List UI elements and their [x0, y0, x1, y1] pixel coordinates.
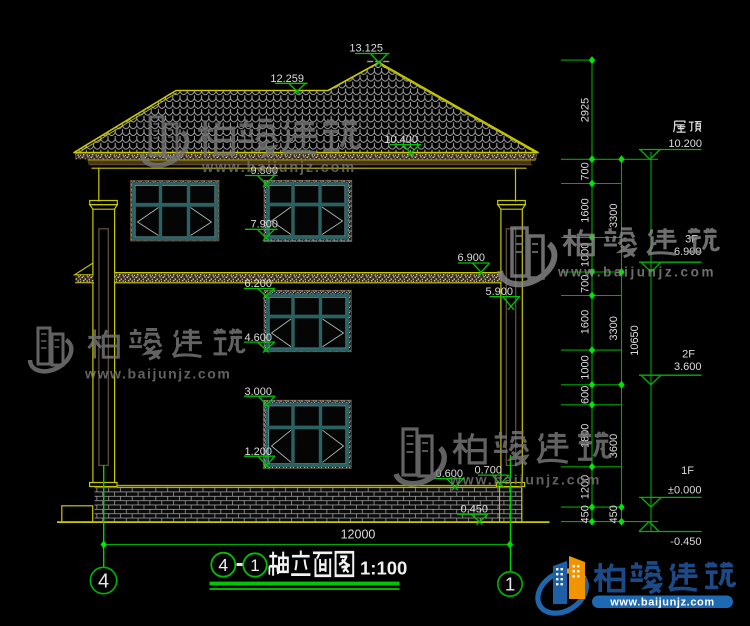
- svg-text:-0.450: -0.450: [670, 536, 701, 548]
- svg-text:600: 600: [580, 386, 592, 404]
- svg-text:3.600: 3.600: [674, 361, 702, 373]
- svg-text:1: 1: [505, 574, 515, 595]
- svg-text:3300: 3300: [608, 203, 620, 227]
- svg-text:www.baijunjz.com: www.baijunjz.com: [449, 472, 601, 488]
- svg-text:4: 4: [218, 555, 228, 575]
- svg-text:1F: 1F: [681, 465, 694, 477]
- svg-text:1:100: 1:100: [360, 558, 407, 579]
- svg-text:700: 700: [580, 162, 592, 180]
- svg-text:1600: 1600: [580, 310, 592, 334]
- svg-text:www.baijunjz.com: www.baijunjz.com: [84, 366, 231, 382]
- svg-text:4: 4: [98, 571, 109, 593]
- svg-text:www.baijunjz.com: www.baijunjz.com: [201, 160, 356, 176]
- svg-text:2F: 2F: [682, 349, 695, 361]
- svg-text:1000: 1000: [580, 355, 592, 379]
- svg-text:450: 450: [580, 505, 592, 523]
- svg-text:10.200: 10.200: [668, 138, 702, 150]
- svg-text:1: 1: [250, 556, 259, 575]
- svg-text:10650: 10650: [629, 325, 641, 356]
- svg-text:13.125: 13.125: [349, 43, 383, 55]
- svg-text:1600: 1600: [580, 198, 592, 222]
- svg-text:2925: 2925: [580, 98, 592, 122]
- svg-text:450: 450: [608, 505, 620, 523]
- svg-text:www.baijunjz.com: www.baijunjz.com: [609, 596, 715, 608]
- svg-text:3300: 3300: [608, 316, 620, 340]
- svg-text:±0.000: ±0.000: [668, 484, 702, 496]
- svg-text:12000: 12000: [341, 528, 376, 542]
- svg-text:www.baijunjz.com: www.baijunjz.com: [557, 265, 716, 280]
